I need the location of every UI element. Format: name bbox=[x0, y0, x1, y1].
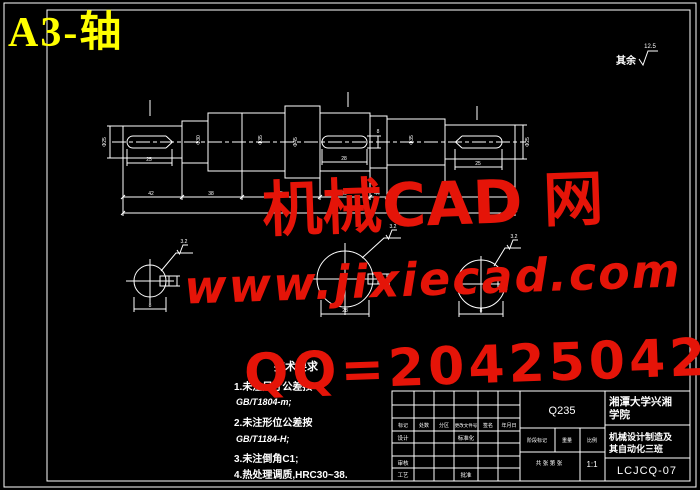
dim-key-mid-t: 8 bbox=[377, 129, 380, 135]
dim-dia-right: Φ25 bbox=[525, 137, 531, 147]
surface-note-label: 其余 bbox=[616, 54, 637, 67]
tb-course-line2: 其自动化三班 bbox=[609, 443, 663, 454]
tb-label-count: 处数 bbox=[419, 422, 429, 429]
cad-sheet: Φ25 Φ25 Φ30 Φ35 Φ45 Φ35 25 28 8 25 bbox=[0, 0, 700, 490]
surface-note-value: 12.5 bbox=[644, 44, 656, 50]
title-block: 标记 处数 分区 更改文件号 签名 年月日 设计 标准化 审核 工艺 批准 Q2… bbox=[392, 391, 690, 481]
tb-label-zone: 分区 bbox=[439, 422, 449, 429]
dim-dia-s5: Φ45 bbox=[293, 137, 299, 147]
tb-label-weight: 重量 bbox=[562, 437, 572, 444]
tb-school-line1: 湘潭大学兴湘 bbox=[609, 395, 672, 408]
dim-sec-c: 8 bbox=[480, 308, 483, 314]
dim-dia-s8: Φ35 bbox=[409, 135, 415, 145]
tech-line-5: 3.未注倒角C1; bbox=[234, 450, 298, 465]
watermark-brand: 机械CAD 网 bbox=[261, 150, 605, 249]
tb-material: Q235 bbox=[549, 405, 576, 417]
tech-line-6: 4.热处理调质,HRC30~38. bbox=[234, 466, 348, 481]
tb-course-line1: 机械设计制造及 bbox=[609, 431, 673, 442]
tb-scale-value: 1:1 bbox=[586, 460, 598, 469]
tb-label-mark: 标记 bbox=[398, 422, 408, 429]
tb-label-scale: 比例 bbox=[587, 437, 597, 444]
dim-dia-s3: Φ35 bbox=[258, 135, 264, 145]
tb-label-craft: 工艺 bbox=[397, 472, 409, 479]
dim-chain-1: 42 bbox=[148, 191, 154, 197]
tb-label-design: 设计 bbox=[397, 434, 409, 442]
tb-label-date: 年月日 bbox=[501, 422, 516, 429]
tech-line-3: 2.未注形位公差按 bbox=[234, 414, 312, 429]
tb-label-sign: 签名 bbox=[483, 422, 493, 429]
surface-note: 其余 12.5 bbox=[616, 44, 658, 67]
dim-dia-left: Φ25 bbox=[102, 137, 108, 147]
roughness-icon bbox=[639, 51, 658, 65]
tb-label-stage: 阶段标记 bbox=[527, 437, 547, 444]
roughness-value-a: 3.2 bbox=[181, 239, 188, 245]
page-title: A3-轴 bbox=[8, 0, 123, 59]
tb-label-standard: 标准化 bbox=[458, 434, 475, 442]
tb-label-file: 更改文件号 bbox=[455, 422, 478, 429]
dim-key-left: 25 bbox=[146, 157, 152, 163]
dim-chain-2: 38 bbox=[208, 191, 214, 197]
tb-label-audit: 审核 bbox=[397, 459, 409, 467]
dim-sec-a: 8 bbox=[149, 303, 152, 309]
tb-label-approve: 批准 bbox=[460, 471, 472, 479]
tb-label-sheets: 共 张 第 张 bbox=[536, 459, 563, 467]
tech-line-4: GB/T1184-H; bbox=[236, 434, 289, 444]
dim-dia-s2: Φ30 bbox=[196, 135, 202, 145]
tb-drawing-no: LCJCQ-07 bbox=[617, 465, 677, 477]
tb-school-line2: 学院 bbox=[609, 408, 630, 421]
